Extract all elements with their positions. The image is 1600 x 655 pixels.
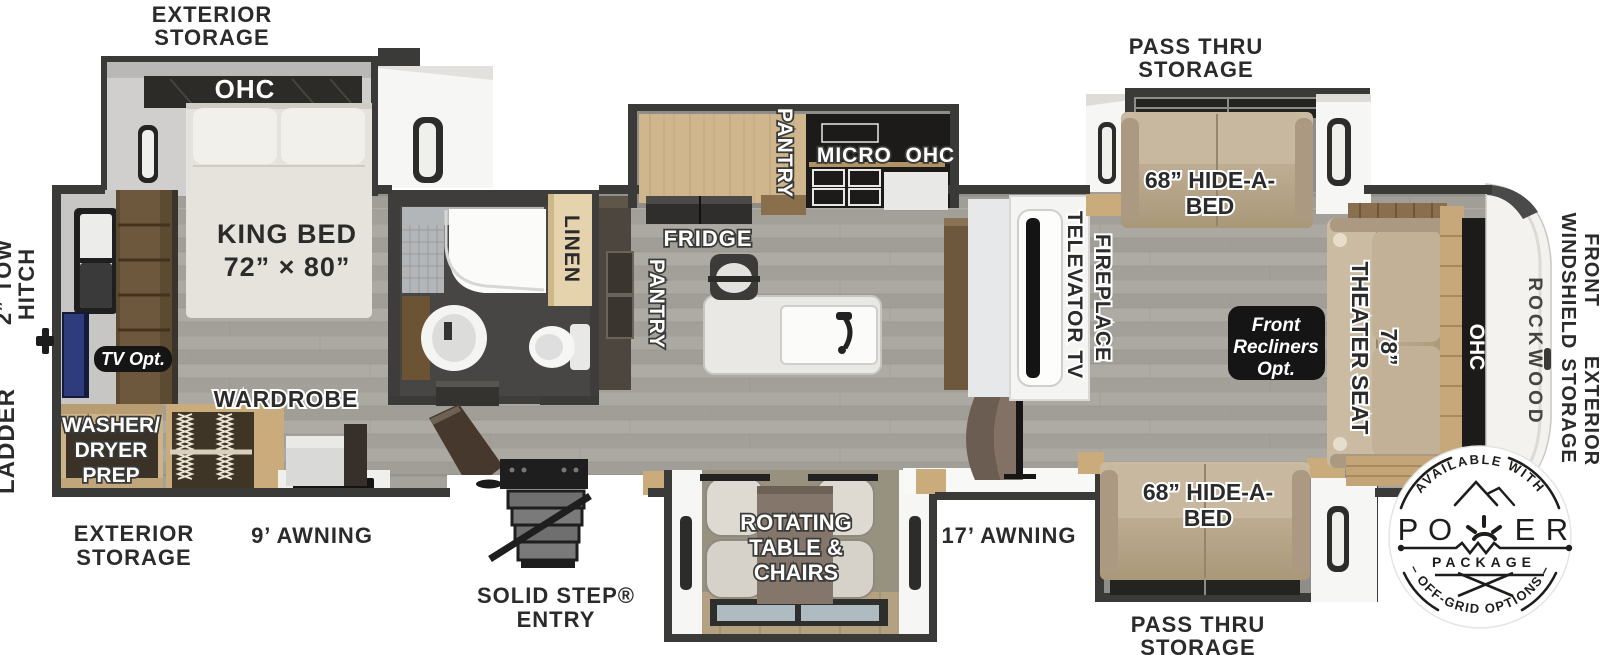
svg-text:Opt.: Opt.: [1257, 359, 1295, 380]
svg-text:PACKAGE: PACKAGE: [1432, 554, 1536, 570]
svg-text:FIREPLACE: FIREPLACE: [1091, 234, 1114, 362]
svg-text:78”: 78”: [1376, 328, 1402, 365]
svg-text:CHAIRS: CHAIRS: [754, 560, 838, 585]
svg-text:ENTRY: ENTRY: [517, 607, 596, 632]
svg-text:PASS THRU: PASS THRU: [1131, 612, 1266, 637]
svg-text:DRYER: DRYER: [75, 439, 148, 462]
svg-text:BED: BED: [1186, 193, 1235, 219]
svg-text:17’ AWNING: 17’ AWNING: [941, 523, 1076, 548]
svg-text:WASHER/: WASHER/: [62, 414, 160, 437]
svg-text:OHC: OHC: [1465, 324, 1488, 371]
svg-text:LINEN: LINEN: [560, 215, 583, 283]
svg-text:WARDROBE: WARDROBE: [214, 386, 359, 412]
svg-text:PREP: PREP: [82, 464, 139, 487]
svg-text:WINDSHIELD: WINDSHIELD: [1557, 213, 1579, 350]
svg-text:9’ AWNING: 9’ AWNING: [251, 523, 373, 548]
svg-text:TV Opt.: TV Opt.: [101, 349, 165, 369]
svg-text:ROTATING: ROTATING: [740, 510, 852, 535]
svg-text:STORAGE: STORAGE: [154, 25, 269, 50]
svg-text:BED: BED: [1184, 505, 1233, 531]
svg-text:HITCH: HITCH: [14, 248, 39, 320]
svg-text:68” HIDE-A-: 68” HIDE-A-: [1145, 167, 1275, 193]
svg-text:EXTERIOR: EXTERIOR: [74, 521, 194, 546]
svg-text:LADDER: LADDER: [0, 388, 20, 494]
svg-text:ROCKWOOD: ROCKWOOD: [1524, 277, 1545, 426]
svg-text:TABLE &: TABLE &: [749, 535, 843, 560]
svg-text:TELEVATOR TV: TELEVATOR TV: [1063, 211, 1086, 379]
svg-text:P: P: [1398, 512, 1419, 547]
svg-text:68” HIDE-A-: 68” HIDE-A-: [1143, 479, 1273, 505]
svg-text:R: R: [1546, 512, 1568, 547]
svg-text:STORAGE: STORAGE: [1140, 635, 1255, 655]
svg-text:E: E: [1515, 512, 1536, 547]
svg-text:PANTRY: PANTRY: [645, 259, 668, 349]
svg-text:STORAGE: STORAGE: [76, 545, 191, 570]
svg-text:PANTRY: PANTRY: [773, 108, 796, 198]
svg-text:STORAGE: STORAGE: [1557, 358, 1579, 464]
svg-text:STORAGE: STORAGE: [1138, 57, 1253, 82]
svg-text:MICRO OHC: MICRO OHC: [817, 144, 955, 167]
svg-text:FRONT: FRONT: [1580, 233, 1600, 307]
svg-text:Front: Front: [1252, 315, 1301, 336]
svg-text:THEATER SEAT: THEATER SEAT: [1347, 262, 1373, 435]
svg-text:EXTERIOR: EXTERIOR: [152, 2, 272, 27]
svg-text:Recliners: Recliners: [1233, 337, 1319, 358]
svg-text:O: O: [1428, 512, 1452, 547]
svg-text:PASS THRU: PASS THRU: [1129, 34, 1264, 59]
svg-text:FRIDGE: FRIDGE: [663, 226, 752, 251]
svg-text:KING BED: KING BED: [217, 219, 357, 249]
svg-text:OHC: OHC: [215, 74, 276, 104]
svg-text:EXTERIOR: EXTERIOR: [1580, 356, 1600, 466]
svg-text:SOLID STEP®: SOLID STEP®: [477, 583, 635, 608]
svg-text:72” × 80”: 72” × 80”: [224, 252, 351, 282]
